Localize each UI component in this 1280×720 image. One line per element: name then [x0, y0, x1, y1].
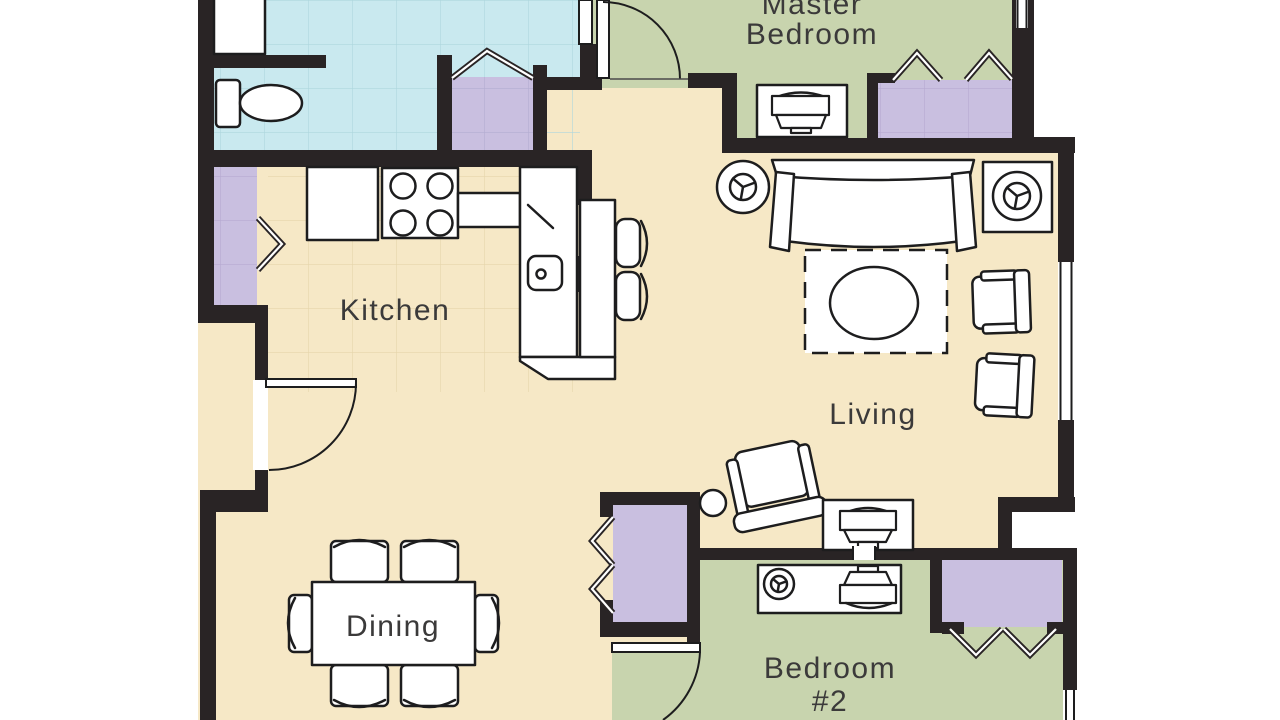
tv-console-master-icon [757, 85, 847, 137]
label-dining: Dining [346, 610, 440, 643]
refrigerator-icon [307, 167, 378, 240]
bar-stool-icon [616, 219, 640, 267]
tile-grid-bath-closet [452, 77, 533, 150]
dining-chair-icon [475, 595, 499, 652]
tv-console-living-icon [823, 500, 913, 550]
bar-stool-icon [616, 272, 640, 320]
floor-plan-page: Master Bedroom Kitchen Living Dining Bed… [0, 0, 1280, 720]
master-bedroom-furniture [757, 85, 847, 137]
label-bedroom2-line2: #2 [812, 685, 848, 718]
round-side-table-icon [700, 490, 726, 516]
floor-entry-closet [613, 505, 687, 622]
tile-grid-hall-closet [214, 167, 257, 307]
bathroom-door [579, 0, 592, 44]
armchair-icon [972, 270, 1031, 334]
round-end-table-icon [717, 161, 769, 213]
kitchen-sink-icon [528, 256, 562, 290]
floor-plan: Master Bedroom Kitchen Living Dining Bed… [0, 0, 1280, 720]
tv-wall-gap [853, 546, 875, 560]
armchair-icon [974, 353, 1034, 418]
dining-chair-icon [401, 540, 458, 582]
dining-chair-icon [331, 665, 388, 707]
label-bedroom2-line1: Bedroom [764, 652, 896, 685]
label-master-line2: Bedroom [746, 18, 878, 51]
dining-chair-icon [288, 595, 312, 652]
dining-chair-icon [331, 540, 388, 582]
window-living-east [1058, 262, 1074, 420]
bathroom-vanity-icon [214, 0, 265, 54]
coffee-table-icon [830, 267, 918, 339]
stove-icon [382, 168, 458, 238]
bar-counter-icon [580, 200, 615, 357]
window-master-east [1016, 0, 1028, 28]
label-living: Living [829, 398, 916, 431]
label-kitchen: Kitchen [340, 294, 451, 327]
window-bedroom2-east [1063, 690, 1077, 720]
floor-bedroom2-closet [942, 560, 1062, 627]
sofa-icon [770, 160, 976, 251]
dining-chair-icon [401, 665, 458, 707]
tile-grid-master-closet [878, 80, 1012, 138]
square-end-table-icon [983, 162, 1052, 232]
bedroom2-furniture [758, 565, 901, 613]
